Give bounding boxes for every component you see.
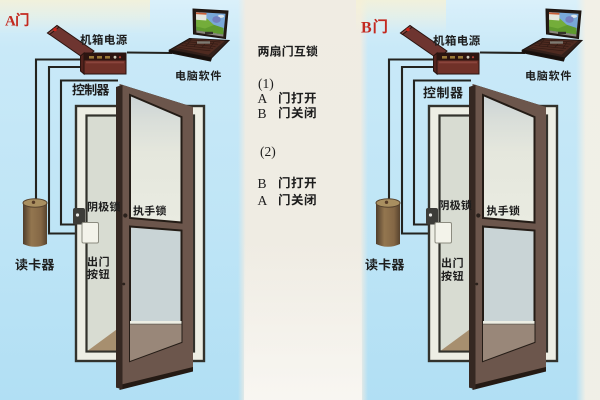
svg-text:B: B	[258, 176, 267, 191]
svg-text:(1): (1)	[258, 76, 274, 91]
svg-text:B: B	[258, 106, 267, 121]
svg-text:A: A	[5, 14, 16, 30]
svg-text:B: B	[361, 20, 372, 37]
svg-text:A: A	[258, 91, 268, 106]
svg-text:(2): (2)	[260, 144, 276, 159]
svg-text:A: A	[258, 193, 268, 208]
